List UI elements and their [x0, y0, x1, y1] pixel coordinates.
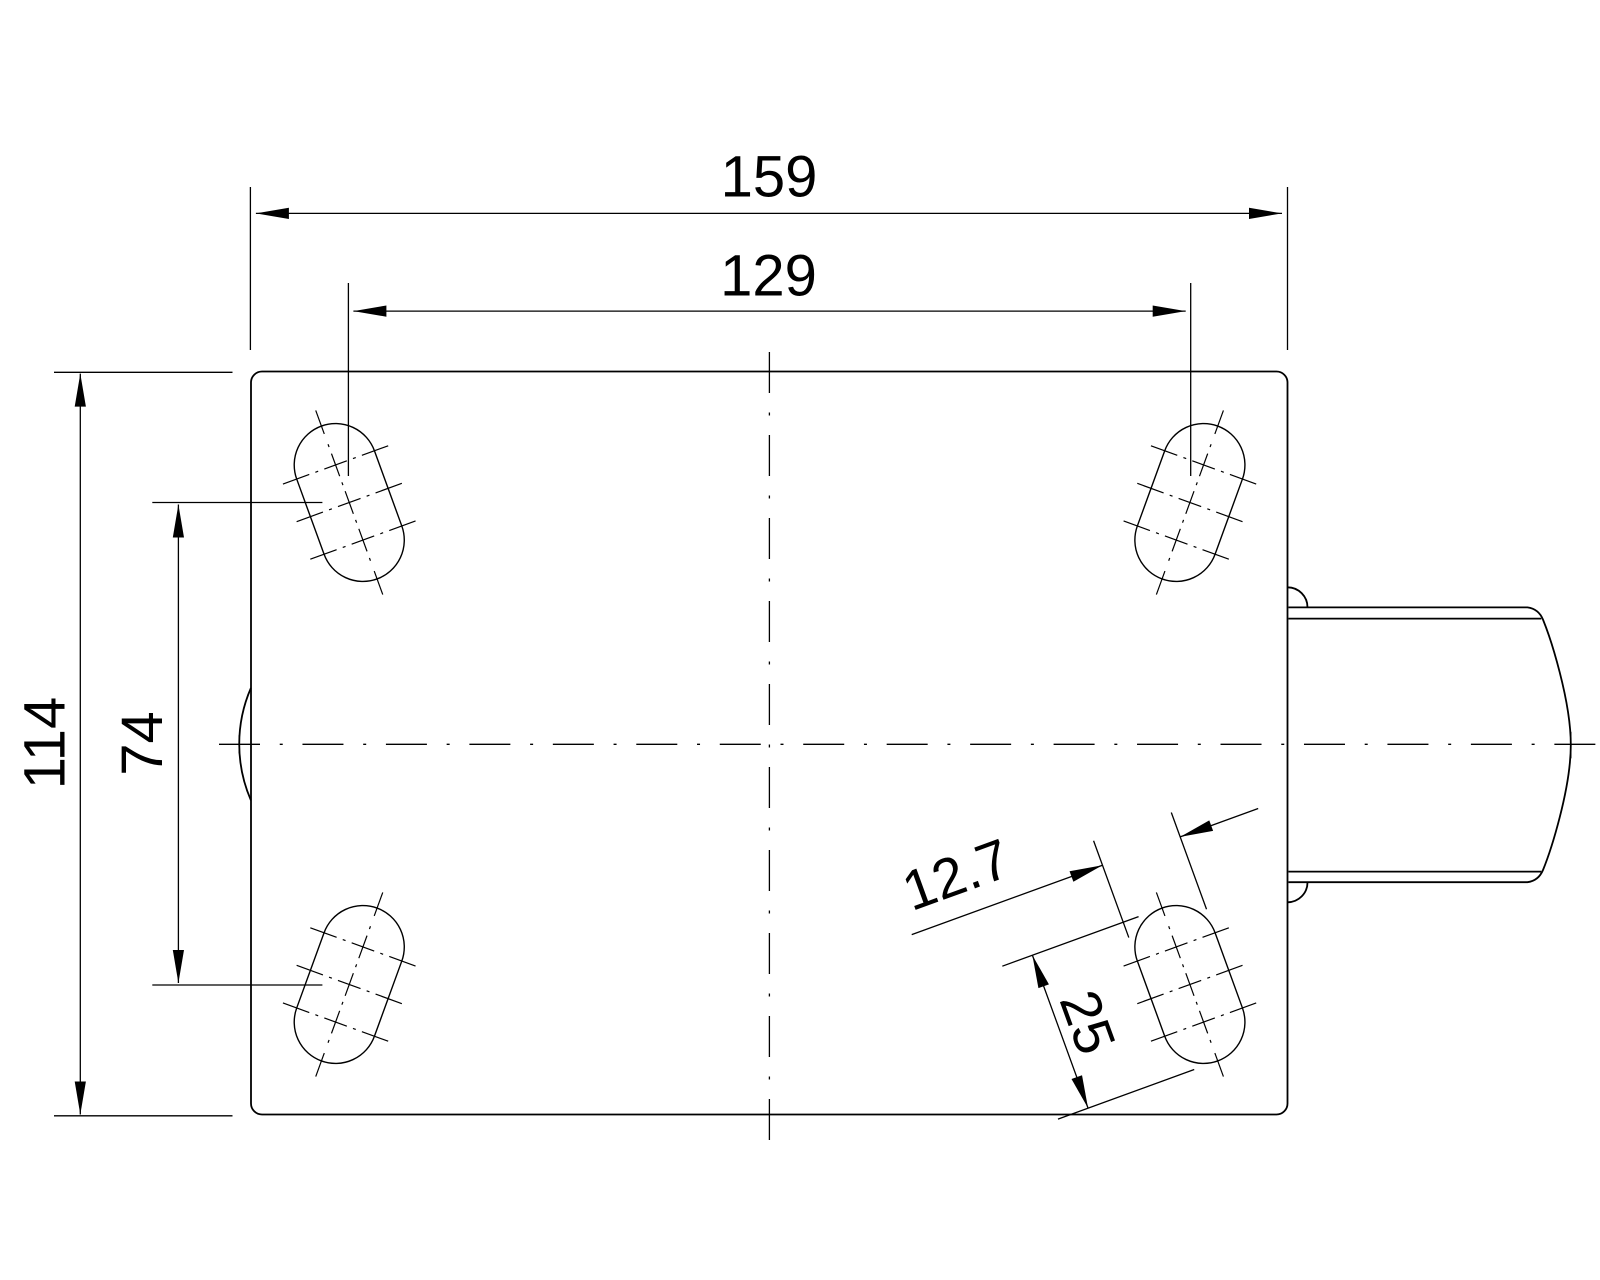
svg-text:129: 129	[720, 244, 817, 309]
svg-text:74: 74	[110, 711, 175, 776]
svg-text:25: 25	[1048, 982, 1129, 1062]
svg-text:114: 114	[13, 697, 78, 789]
svg-text:159: 159	[721, 145, 818, 210]
svg-text:12.7: 12.7	[894, 826, 1018, 922]
